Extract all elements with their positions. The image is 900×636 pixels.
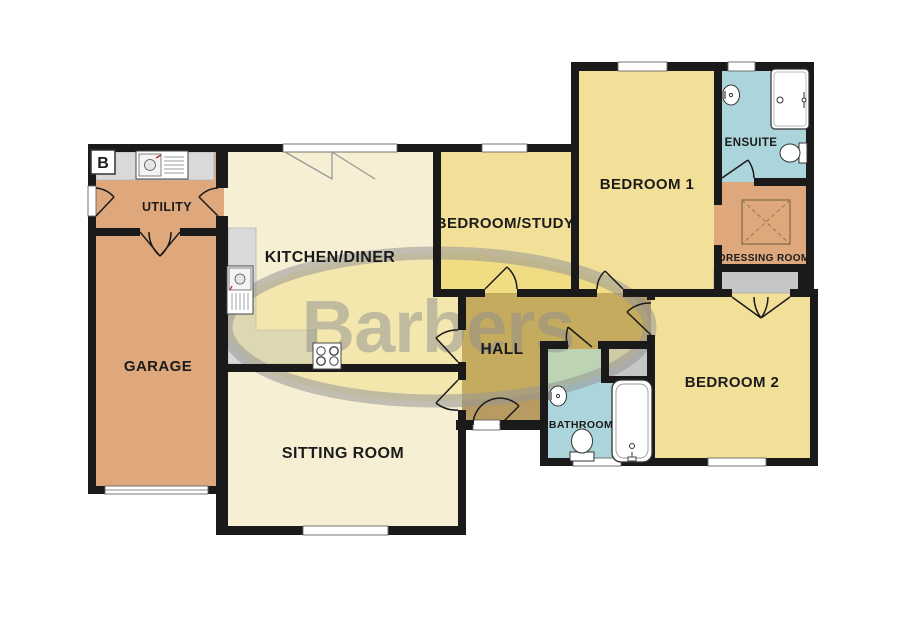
wall (601, 341, 609, 383)
wall (571, 62, 579, 297)
wall (458, 410, 466, 535)
wall (88, 216, 96, 494)
room-label-utility: UTILITY (142, 200, 192, 214)
ensuite-window (728, 62, 755, 71)
watermark-text: Barbers (302, 285, 575, 368)
floorplan-svg: Barbers (0, 0, 900, 636)
plot-marker: B (91, 150, 115, 174)
wall (218, 364, 466, 372)
kitchen-sink-fixture (227, 266, 253, 314)
room-label-bedroom-study: BEDROOM/STUDY (436, 215, 575, 232)
study-window (482, 144, 527, 152)
floorplan: Barbers (0, 0, 900, 636)
wall (216, 216, 228, 535)
bathroom-toilet-fixture (570, 429, 594, 461)
room-label-sitting-room: SITTING ROOM (282, 445, 404, 462)
wall (754, 178, 814, 186)
room-label-bedroom-1: BEDROOM 1 (600, 176, 694, 193)
sitting-window (303, 526, 388, 535)
utility-door-gap (88, 186, 96, 216)
room-label-hall: HALL (481, 341, 524, 358)
bedroom2-window (708, 458, 766, 466)
room-label-ensuite: ENSUITE (725, 137, 778, 149)
room-label-garage: GARAGE (124, 358, 192, 375)
wall (540, 341, 548, 466)
kitchen-window (283, 144, 397, 152)
plot-marker-label: B (97, 155, 109, 172)
bathtub-fixture (612, 380, 652, 462)
room-label-bedroom-2: BEDROOM 2 (685, 374, 779, 391)
wall (810, 289, 818, 466)
wall (517, 289, 597, 297)
wall (714, 62, 722, 205)
ensuite-basin-fixture (722, 85, 740, 105)
bedroom1-window (618, 62, 667, 71)
hob-fixture (313, 343, 341, 369)
front-door-gap (473, 420, 500, 430)
wall (647, 289, 655, 300)
room-label-kitchen-diner: KITCHEN/DINER (265, 249, 396, 266)
wall (216, 144, 228, 188)
wall (456, 420, 548, 430)
room-label-bathroom: BATHROOM (549, 419, 613, 431)
utility-sink-fixture (136, 151, 188, 179)
room-label-dressing-room: DRESSING ROOM (718, 253, 809, 264)
shower-fixture (771, 69, 809, 129)
wall (458, 362, 466, 380)
ensuite-toilet-fixture (780, 143, 807, 163)
wall (458, 289, 466, 330)
